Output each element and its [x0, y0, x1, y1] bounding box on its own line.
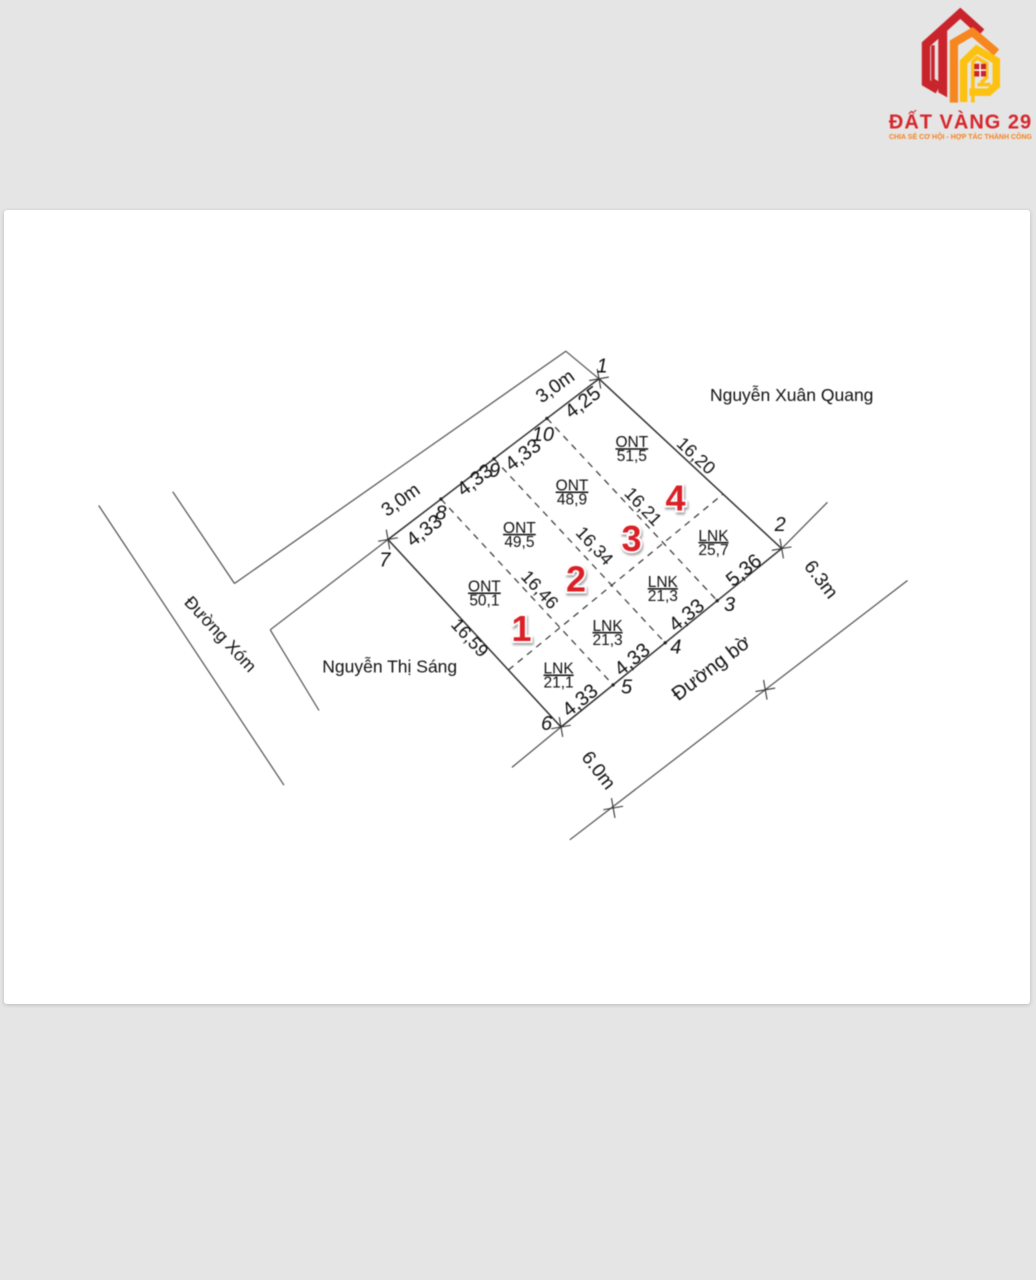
svg-text:21,3: 21,3	[593, 632, 623, 649]
svg-text:2: 2	[774, 514, 786, 536]
svg-text:4: 4	[670, 636, 681, 658]
svg-text:7: 7	[379, 550, 391, 572]
svg-text:5,36: 5,36	[722, 550, 766, 592]
svg-text:4: 4	[665, 478, 685, 519]
svg-text:48,9: 48,9	[557, 492, 587, 509]
svg-text:51,5: 51,5	[617, 448, 647, 465]
svg-text:25,7: 25,7	[698, 542, 728, 559]
svg-text:3: 3	[724, 594, 735, 616]
svg-text:2: 2	[566, 559, 586, 600]
svg-text:CHIA SẺ CƠ HỘI - HỢP TÁC THÀNH: CHIA SẺ CƠ HỘI - HỢP TÁC THÀNH CÔNG	[889, 132, 1033, 141]
svg-text:1: 1	[596, 356, 607, 378]
svg-text:3: 3	[621, 518, 641, 559]
svg-text:21,3: 21,3	[648, 588, 678, 605]
svg-text:49,5: 49,5	[504, 534, 534, 551]
svg-text:6.0m: 6.0m	[577, 748, 619, 794]
svg-text:Đường Xóm: Đường Xóm	[180, 592, 260, 676]
svg-text:3,0m: 3,0m	[378, 480, 425, 522]
svg-text:Nguyễn Thị Sáng: Nguyễn Thị Sáng	[322, 656, 457, 677]
svg-text:50,1: 50,1	[469, 593, 499, 610]
svg-text:Nguyễn Xuân Quang: Nguyễn Xuân Quang	[710, 384, 873, 405]
svg-text:16,20: 16,20	[673, 433, 720, 478]
svg-text:6: 6	[541, 713, 553, 735]
svg-text:21,1: 21,1	[544, 675, 574, 692]
svg-text:16,59: 16,59	[447, 614, 492, 661]
svg-text:ĐẤT VÀNG 29: ĐẤT VÀNG 29	[889, 111, 1032, 134]
svg-text:6.3m: 6.3m	[799, 557, 841, 603]
svg-text:1: 1	[511, 608, 531, 649]
